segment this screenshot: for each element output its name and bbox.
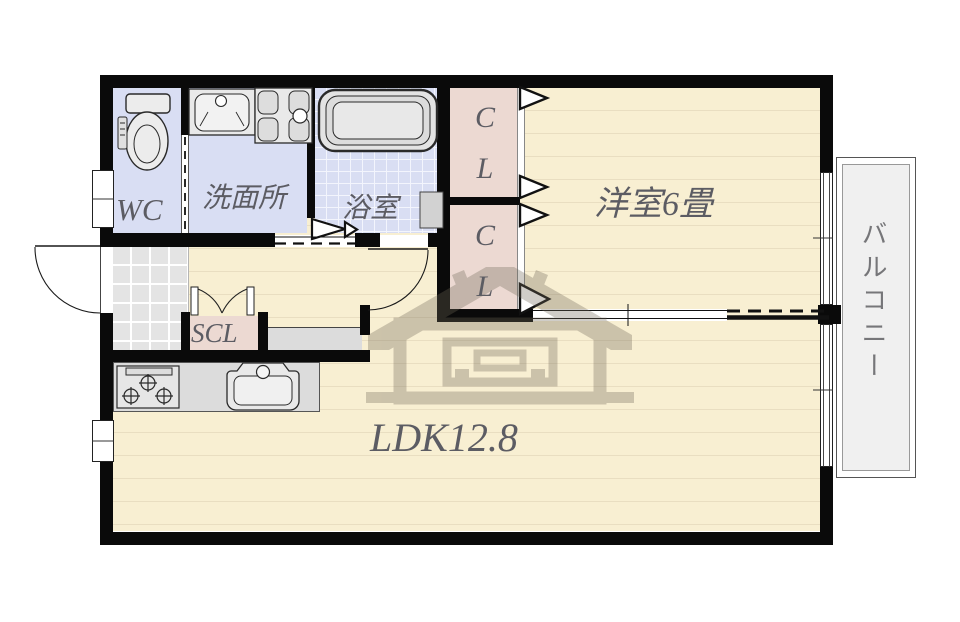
bathtub-icon: [319, 90, 437, 151]
wc-label: WC: [116, 192, 163, 228]
hall-swing-door: [368, 249, 428, 310]
ldk-label: LDK12.8: [370, 414, 518, 461]
closet-upper-label-l: L: [466, 143, 504, 194]
bath-heater-unit: [420, 192, 443, 228]
vanity-sink-icon: [189, 89, 255, 135]
scl-double-doors: [191, 287, 254, 315]
closet-lower-label-c: C: [466, 210, 504, 261]
scl-label: SCL: [191, 318, 238, 349]
closet-upper-label-c: C: [466, 92, 504, 143]
washroom-label: 洗面所: [202, 176, 286, 216]
entrance-door-swing: [35, 246, 100, 313]
bathroom-label: 浴室: [342, 186, 398, 226]
closet-upper-label: C L: [466, 92, 504, 194]
floor-plan: WC 洗面所 浴室 C L C L 洋室6畳 LDK12.8 SCL バルコニー: [0, 0, 960, 622]
western-room-label: 洋室6畳: [594, 176, 713, 225]
kitchen-sink-icon: [227, 363, 299, 410]
toilet-icon: [118, 94, 170, 170]
washing-machine-pan-icon: [255, 88, 312, 143]
stove-icon: [117, 366, 179, 408]
balcony-label: バルコニー: [854, 220, 891, 385]
closet-lower-label-l: L: [466, 261, 504, 312]
closet-lower-label: C L: [466, 210, 504, 312]
